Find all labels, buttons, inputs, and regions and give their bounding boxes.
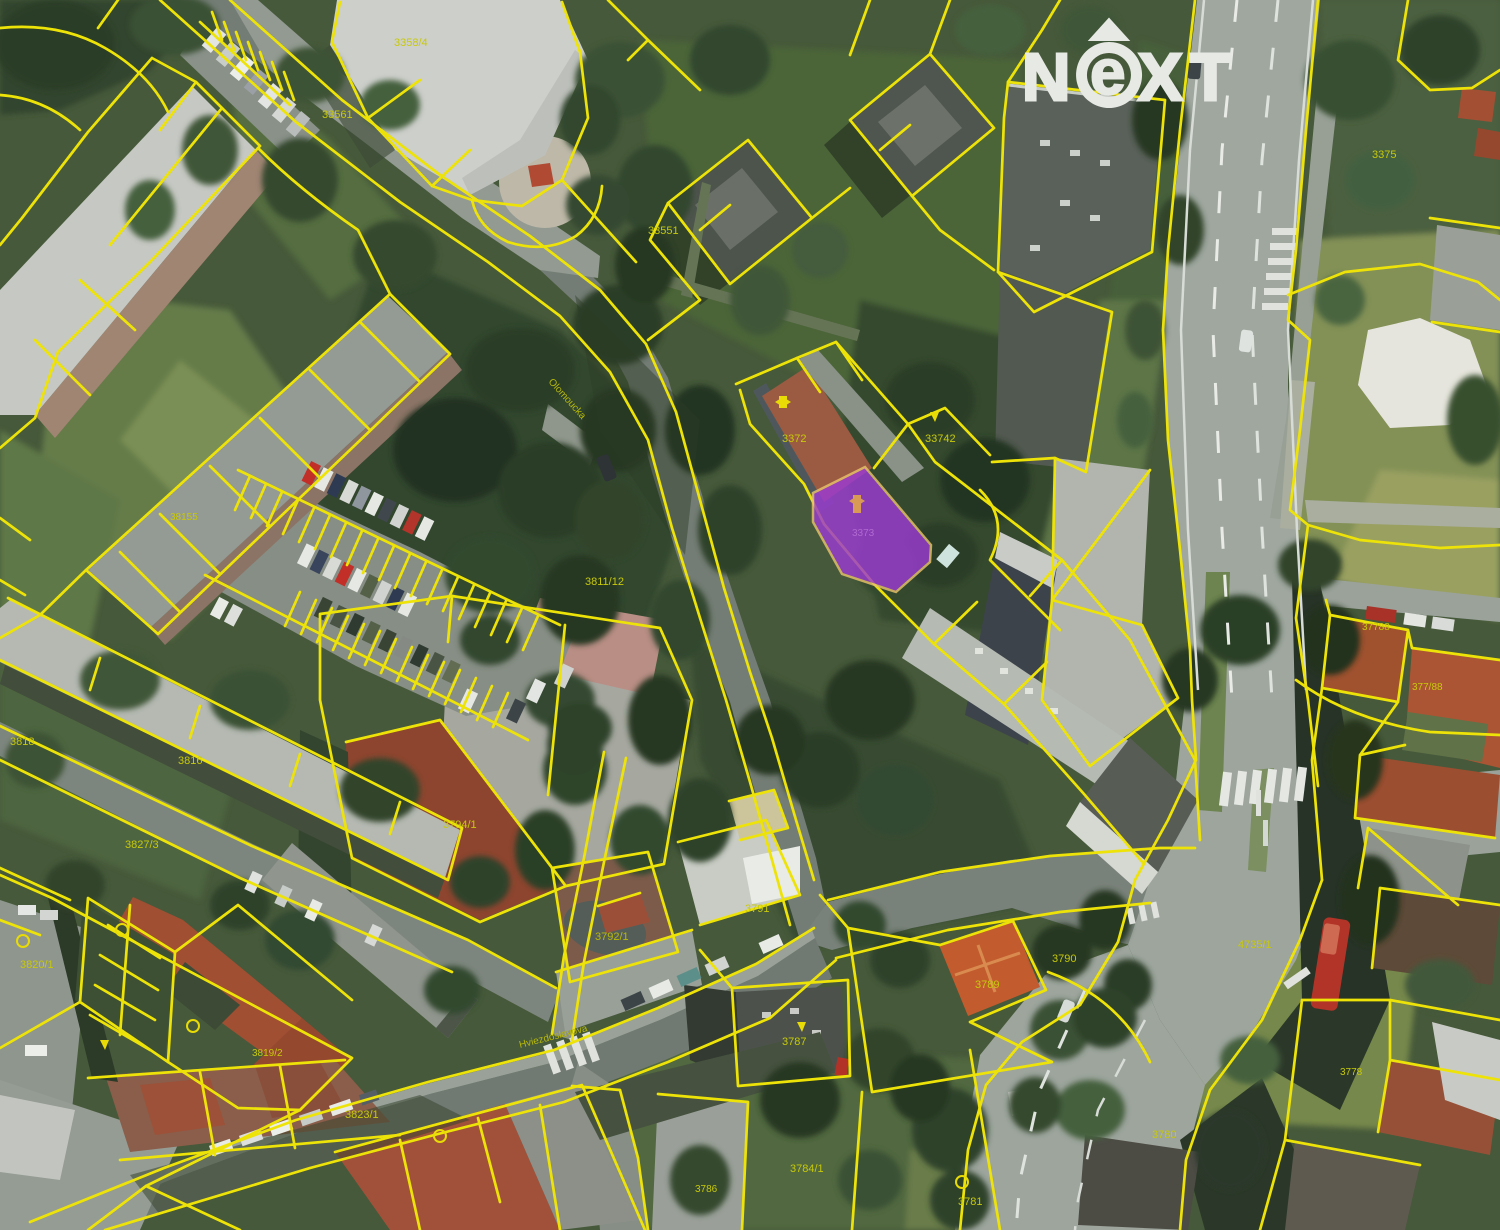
svg-text:3373: 3373 (852, 528, 875, 539)
svg-text:3816: 3816 (178, 755, 202, 767)
svg-text:377/88: 377/88 (1412, 682, 1443, 693)
svg-text:4735/1: 4735/1 (1238, 939, 1272, 951)
svg-text:38155: 38155 (170, 512, 198, 523)
svg-text:3792/1: 3792/1 (595, 931, 629, 943)
svg-text:3781: 3781 (958, 1196, 982, 1208)
svg-text:33742: 33742 (925, 433, 956, 445)
svg-text:3819/2: 3819/2 (252, 1048, 283, 1059)
svg-text:3818: 3818 (10, 736, 34, 748)
svg-text:3811/12: 3811/12 (585, 576, 624, 588)
svg-text:3358/4: 3358/4 (394, 37, 428, 49)
svg-text:3780: 3780 (1152, 1129, 1176, 1141)
svg-text:3790: 3790 (1052, 953, 1076, 965)
svg-text:3794/1: 3794/1 (443, 819, 477, 831)
svg-text:3786: 3786 (695, 1184, 718, 1195)
svg-text:37788: 37788 (1362, 622, 1390, 633)
svg-text:T: T (1190, 40, 1231, 115)
svg-text:3820/1: 3820/1 (20, 959, 54, 971)
svg-text:3778: 3778 (1340, 1067, 1363, 1078)
svg-text:3827/3: 3827/3 (125, 839, 159, 851)
svg-text:X: X (1138, 40, 1183, 115)
svg-text:3787: 3787 (782, 1036, 806, 1048)
svg-text:N: N (1022, 40, 1068, 115)
svg-text:3784/1: 3784/1 (790, 1163, 824, 1175)
svg-text:33561: 33561 (322, 109, 353, 121)
svg-text:33551: 33551 (648, 225, 679, 237)
svg-text:3791: 3791 (745, 903, 769, 915)
svg-text:3789: 3789 (975, 979, 999, 991)
svg-text:3375: 3375 (1372, 149, 1396, 161)
svg-text:e: e (1090, 36, 1126, 108)
svg-text:3823/1: 3823/1 (345, 1109, 379, 1121)
svg-text:3372: 3372 (782, 433, 806, 445)
